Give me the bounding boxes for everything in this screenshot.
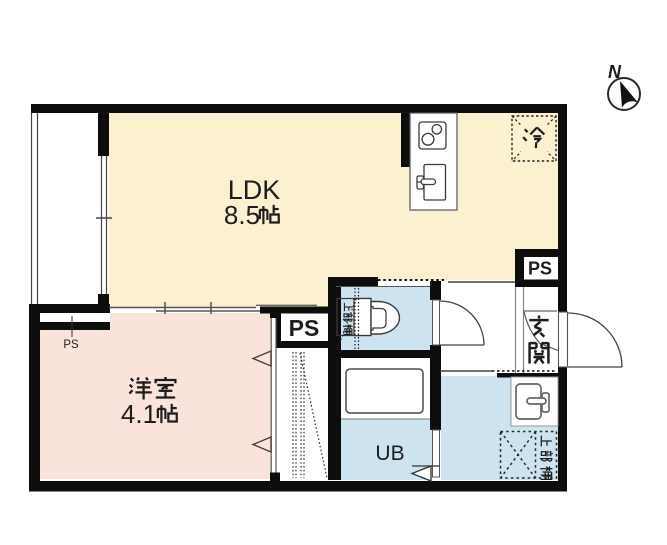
svg-text:8.5: 8.5: [224, 200, 260, 230]
svg-text:N: N: [608, 62, 622, 82]
svg-text:4.1: 4.1: [121, 399, 157, 429]
svg-text:PS: PS: [63, 339, 79, 351]
svg-text:PS: PS: [289, 315, 320, 341]
svg-text:PS: PS: [528, 259, 552, 279]
svg-text:UB: UB: [375, 442, 404, 465]
